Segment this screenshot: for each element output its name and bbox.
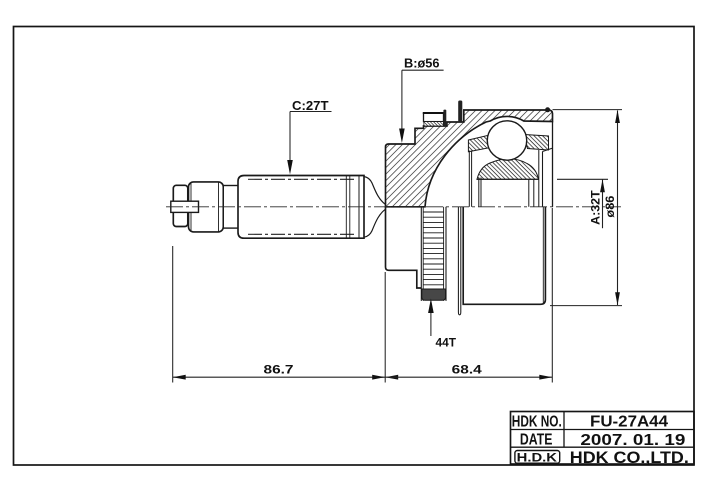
svg-text:HDK CO.,LTD.: HDK CO.,LTD. <box>570 449 689 467</box>
svg-text:B:ø56: B:ø56 <box>404 56 440 71</box>
svg-text:DATE: DATE <box>520 432 553 449</box>
svg-text:68.4: 68.4 <box>452 363 482 377</box>
svg-text:44T: 44T <box>436 338 457 350</box>
svg-text:HDK NO.: HDK NO. <box>512 414 562 431</box>
svg-text:2007. 01. 19: 2007. 01. 19 <box>580 432 685 449</box>
svg-text:A:32T: A:32T <box>589 190 603 225</box>
svg-text:FU-27A44: FU-27A44 <box>590 414 668 431</box>
svg-text:ø86: ø86 <box>605 196 617 218</box>
svg-text:C:27T: C:27T <box>292 98 329 113</box>
svg-text:86.7: 86.7 <box>264 363 294 377</box>
svg-text:H.D.K: H.D.K <box>517 450 558 464</box>
